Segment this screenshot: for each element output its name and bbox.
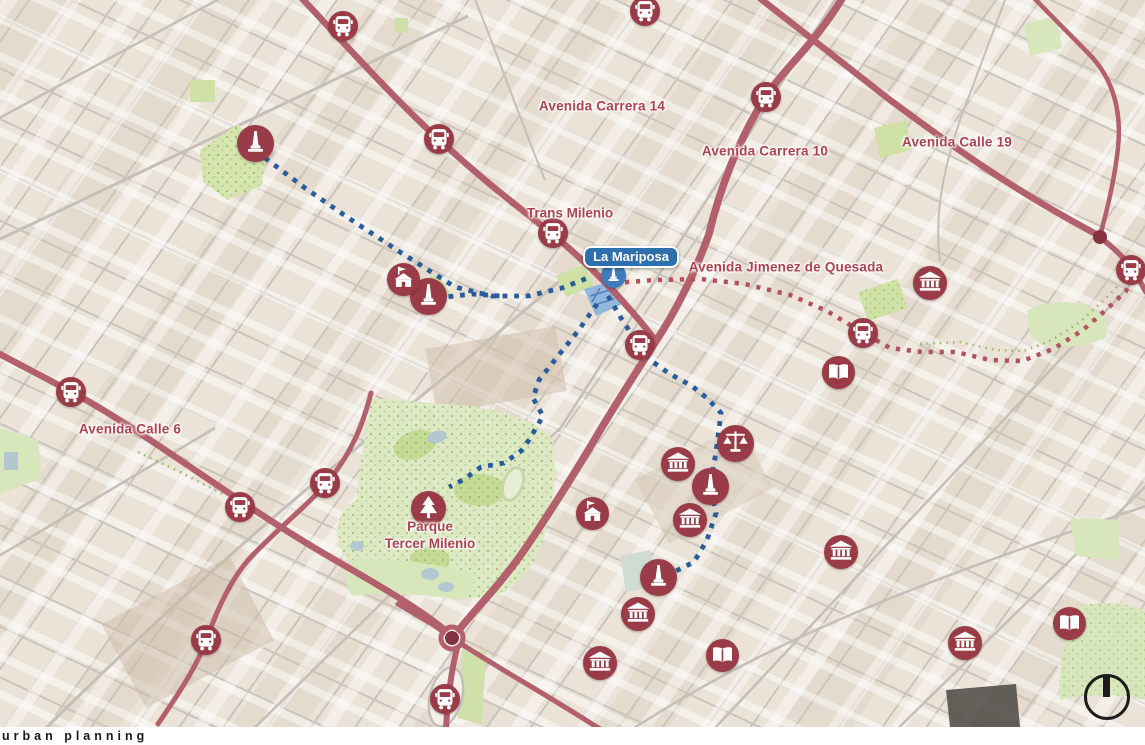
museum-icon-glyph [913, 266, 947, 300]
library-icon-glyph [822, 356, 855, 389]
courthouse-icon[interactable] [717, 425, 754, 462]
museum-icon[interactable] [948, 626, 982, 660]
museum-icon[interactable] [583, 646, 617, 680]
museum-icon[interactable] [661, 447, 695, 481]
bus-stop-icon[interactable] [848, 318, 878, 348]
urban-planning-map-page: { "map": { "street_labels": [ {"id":"ave… [0, 0, 1145, 745]
museum-icon[interactable] [621, 597, 655, 631]
label-parque-tercer-milenio: Parque Tercer Milenio [385, 519, 476, 553]
monument-icon[interactable] [640, 559, 677, 596]
label-trans-milenio: Trans Milenio [527, 206, 613, 223]
museum-icon-glyph [661, 447, 695, 481]
label-avenida-carrera-10: Avenida Carrera 10 [702, 144, 828, 159]
bus-stop-icon-glyph [1116, 255, 1145, 285]
courthouse-icon-glyph [717, 425, 754, 462]
map-canvas[interactable]: Avenida Carrera 14Avenida Carrera 10Aven… [0, 0, 1145, 727]
church-icon[interactable] [576, 497, 609, 530]
bus-stop-icon[interactable] [424, 124, 454, 154]
museum-icon[interactable] [673, 503, 707, 537]
church-icon-glyph [387, 263, 420, 296]
footer-bar: urban planning [0, 727, 1145, 745]
footer-title: urban planning [2, 729, 148, 743]
bus-stop-icon-glyph [225, 492, 255, 522]
compass-needle [1103, 675, 1110, 697]
museum-icon-glyph [673, 503, 707, 537]
bus-stop-icon-glyph [625, 330, 655, 360]
district-blocks [101, 326, 1020, 727]
bus-stop-icon[interactable] [630, 0, 660, 26]
monument-icon[interactable] [237, 125, 274, 162]
label-avenida-calle-6: Avenida Calle 6 [79, 422, 181, 437]
library-icon[interactable] [1053, 607, 1086, 640]
bus-stop-icon[interactable] [538, 218, 568, 248]
bus-stop-icon[interactable] [191, 625, 221, 655]
monument-icon-glyph [640, 559, 677, 596]
museum-icon-glyph [583, 646, 617, 680]
bus-stop-icon-glyph [538, 218, 568, 248]
compass-north-icon [1084, 674, 1130, 720]
library-icon[interactable] [706, 639, 739, 672]
monument-icon-glyph [237, 125, 274, 162]
library-icon-glyph [706, 639, 739, 672]
bus-stop-icon[interactable] [310, 468, 340, 498]
bus-stop-icon-glyph [56, 377, 86, 407]
bus-stop-icon-glyph [191, 625, 221, 655]
museum-icon[interactable] [824, 535, 858, 569]
label-avenida-carrera-14: Avenida Carrera 14 [539, 99, 665, 114]
museum-icon-glyph [824, 535, 858, 569]
museum-icon[interactable] [913, 266, 947, 300]
museum-icon-glyph [948, 626, 982, 660]
bus-stop-icon-glyph [430, 684, 460, 714]
label-avenida-jimenez-de-quesada: Avenida Jimenez de Quesada [689, 260, 884, 275]
bus-stop-icon[interactable] [1116, 255, 1145, 285]
bus-stop-icon-glyph [751, 82, 781, 112]
bus-stop-icon-glyph [328, 11, 358, 41]
road-junction-dot [1093, 230, 1107, 244]
bus-stop-icon[interactable] [625, 330, 655, 360]
la-mariposa-badge[interactable]: La Mariposa [583, 246, 679, 268]
bus-stop-icon-glyph [310, 468, 340, 498]
bus-stop-icon[interactable] [328, 11, 358, 41]
road-junction-dot [445, 631, 459, 645]
church-icon-glyph [576, 497, 609, 530]
monument-icon-glyph [692, 468, 729, 505]
monument-icon[interactable] [692, 468, 729, 505]
bus-stop-icon[interactable] [225, 492, 255, 522]
bus-stop-icon[interactable] [430, 684, 460, 714]
library-icon[interactable] [822, 356, 855, 389]
bus-stop-icon-glyph [424, 124, 454, 154]
museum-icon-glyph [621, 597, 655, 631]
bus-stop-icon-glyph [848, 318, 878, 348]
label-avenida-calle-19: Avenida Calle 19 [902, 135, 1012, 150]
bus-stop-icon[interactable] [751, 82, 781, 112]
library-icon-glyph [1053, 607, 1086, 640]
church-icon[interactable] [387, 263, 420, 296]
bus-stop-icon-glyph [630, 0, 660, 26]
bus-stop-icon[interactable] [56, 377, 86, 407]
